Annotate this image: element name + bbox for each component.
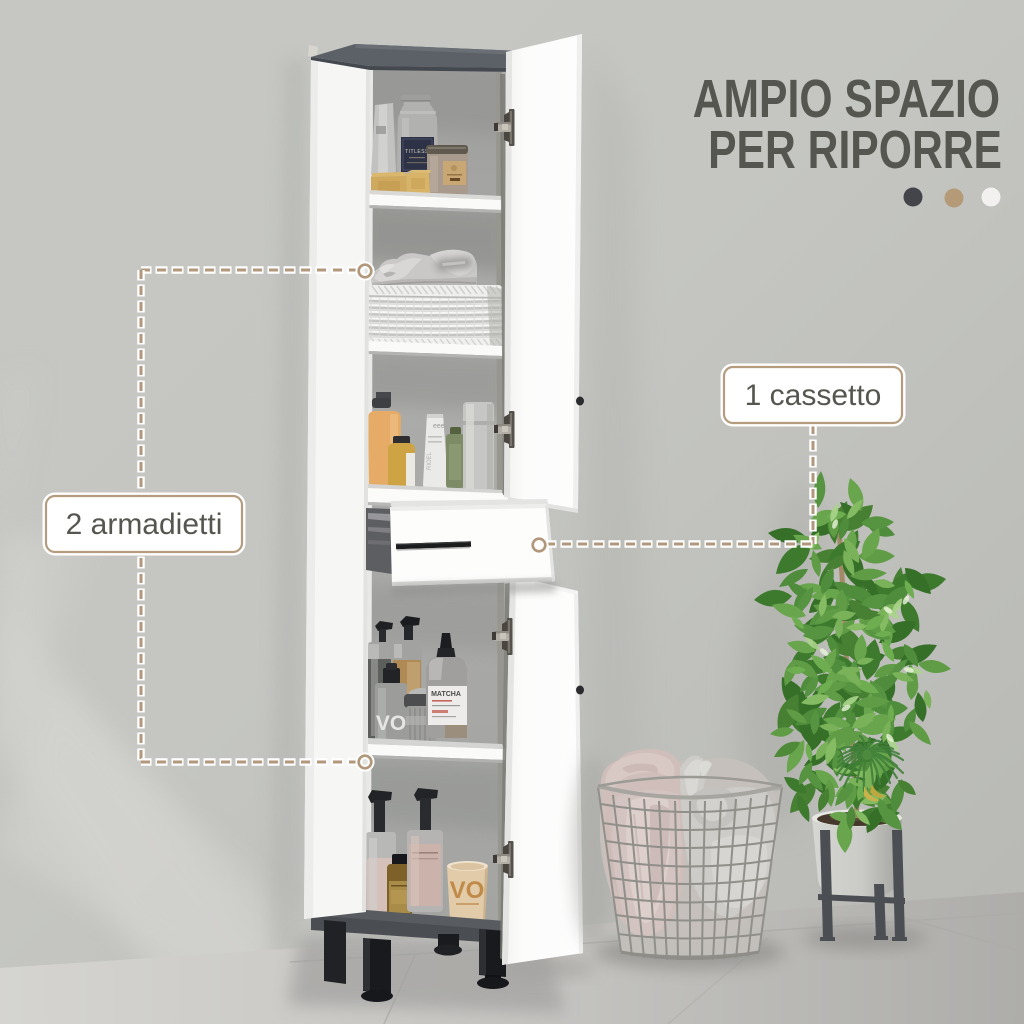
svg-text:2 armadietti: 2 armadietti (66, 508, 223, 541)
svg-text:VO: VO (376, 712, 406, 735)
svg-text:eee: eee (433, 423, 445, 430)
svg-text:MATCHA: MATCHA (431, 691, 461, 698)
svg-text:VO: VO (450, 877, 485, 904)
svg-text:1 cassetto: 1 cassetto (745, 379, 882, 412)
svg-text:RIOEL: RIOEL (427, 451, 433, 470)
svg-text:PER RIPORRE: PER RIPORRE (708, 120, 1002, 180)
svg-text:TITLESS: TITLESS (405, 149, 429, 155)
